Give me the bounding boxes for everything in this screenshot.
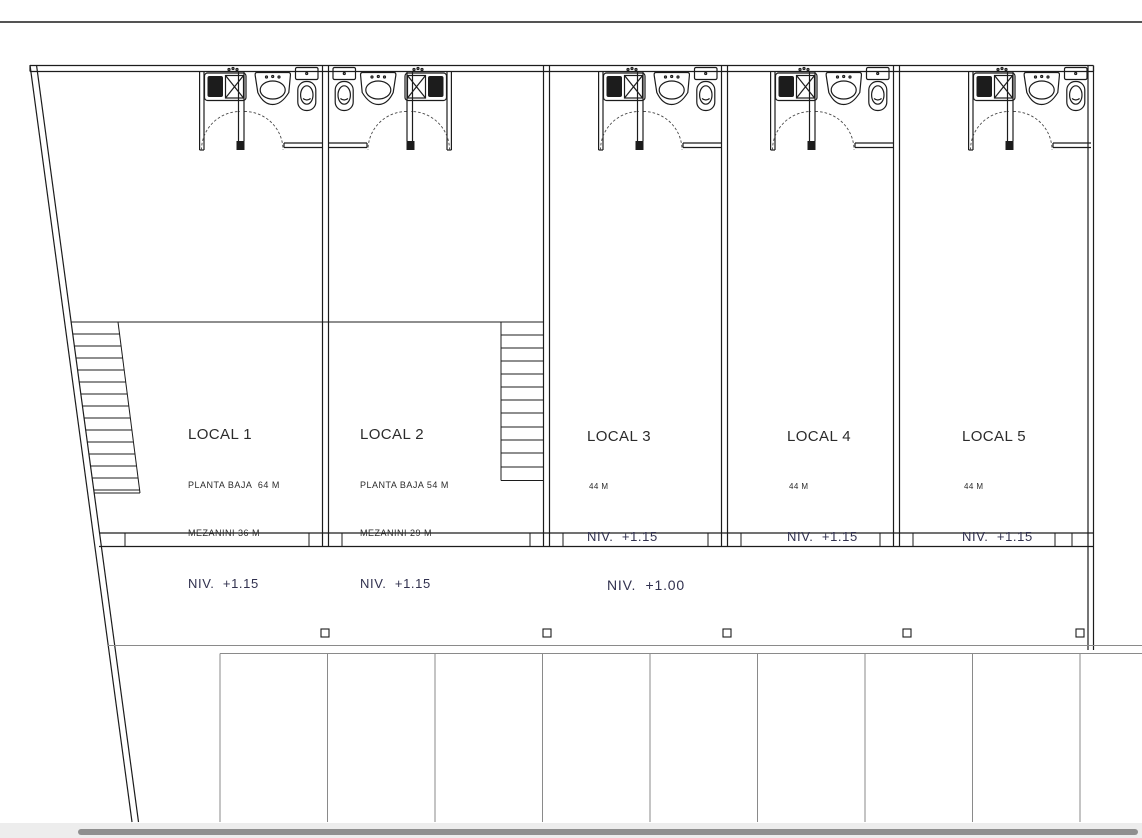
local-2-area-mezzanine: MEZANINI 29 M <box>360 528 449 539</box>
local-4-area: 44 M <box>789 482 858 491</box>
site-boundary-line <box>30 65 139 822</box>
floor-plan-viewport: LOCAL 1 PLANTA BAJA 64 M MEZANINI 36 M N… <box>0 0 1142 838</box>
local-5-level: NIV. +1.15 <box>962 529 1033 544</box>
local-1-area-mezzanine: MEZANINI 36 M <box>188 528 280 539</box>
local-4-label: LOCAL 4 44 M NIV. +1.15 <box>787 392 858 562</box>
local-1-label: LOCAL 1 PLANTA BAJA 64 M MEZANINI 36 M N… <box>188 390 280 609</box>
stairs-local-2 <box>501 322 544 481</box>
local-4-level: NIV. +1.15 <box>787 529 858 544</box>
local-5-label: LOCAL 5 44 M NIV. +1.15 <box>962 392 1033 562</box>
bathroom-local-5 <box>969 68 1091 151</box>
local-2-level: NIV. +1.15 <box>360 576 449 591</box>
local-5-area: 44 M <box>964 482 1033 491</box>
parking-stalls <box>220 654 1142 823</box>
walkway-level-label: NIV. +1.00 <box>607 577 685 593</box>
local-1-area-planta-baja: PLANTA BAJA 64 M <box>188 480 280 491</box>
local-3-label: LOCAL 3 44 M NIV. +1.15 <box>587 392 658 562</box>
bathroom-local-4 <box>771 68 893 151</box>
local-1-level: NIV. +1.15 <box>188 576 280 591</box>
local-4-name: LOCAL 4 <box>787 428 858 445</box>
horizontal-scrollbar-thumb[interactable] <box>78 829 1138 835</box>
horizontal-scrollbar[interactable] <box>0 823 1142 838</box>
local-5-name: LOCAL 5 <box>962 428 1033 445</box>
bathroom-local-2 <box>329 68 451 151</box>
local-3-name: LOCAL 3 <box>587 428 658 445</box>
bathroom-local-1 <box>200 68 322 151</box>
walkway-columns <box>321 629 1084 637</box>
local-3-level: NIV. +1.15 <box>587 529 658 544</box>
local-2-area-planta-baja: PLANTA BAJA 54 M <box>360 480 449 491</box>
bathroom-local-3 <box>599 68 721 151</box>
local-2-label: LOCAL 2 PLANTA BAJA 54 M MEZANINI 29 M N… <box>360 390 449 609</box>
local-2-name: LOCAL 2 <box>360 426 449 443</box>
local-3-area: 44 M <box>589 482 658 491</box>
local-1-name: LOCAL 1 <box>188 426 280 443</box>
